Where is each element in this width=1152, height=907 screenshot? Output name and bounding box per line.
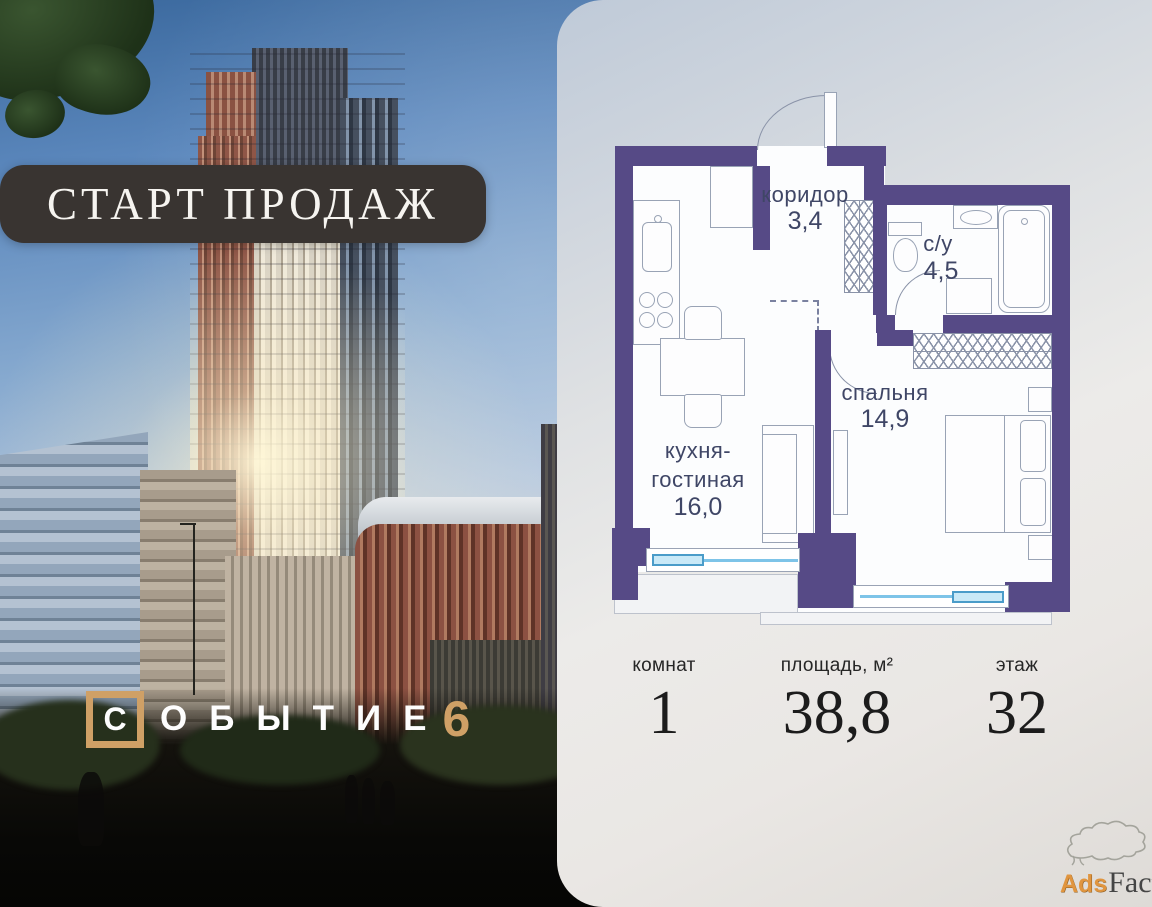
room-label-kitchen-line1: кухня-	[638, 438, 758, 464]
zone-boundary-dashed	[817, 300, 819, 332]
bathroom-sink	[953, 205, 998, 229]
stove-burner	[639, 292, 655, 308]
stat-rooms-label: комнат	[589, 655, 739, 677]
sink-basin	[960, 210, 992, 225]
bathtub-drain	[1021, 218, 1028, 225]
logo-first-letter: С	[103, 703, 126, 735]
wall	[612, 528, 638, 600]
room-area-corridor: 3,4	[745, 207, 865, 236]
wall	[1005, 582, 1070, 612]
balcony-slab	[760, 612, 1052, 625]
kitchen-window-glazing	[704, 559, 798, 562]
stat-rooms: комнат 1	[589, 655, 739, 746]
logo-number: 6	[443, 690, 471, 748]
watermark-text: AdsFactory	[1060, 866, 1152, 900]
dining-table	[660, 338, 745, 396]
chair	[684, 394, 722, 428]
wall	[880, 185, 1070, 205]
kitchen-sink	[642, 222, 672, 272]
stat-area-label: площадь, м²	[742, 655, 932, 677]
person	[380, 781, 395, 825]
zone-boundary-dashed	[770, 300, 819, 302]
stat-floor-label: этаж	[942, 655, 1092, 677]
balcony-slab	[614, 574, 798, 614]
wall	[943, 315, 1052, 333]
wall	[815, 330, 831, 545]
stove-burner	[639, 312, 655, 328]
kitchen-window-sash	[652, 554, 704, 566]
entry-door-leaf	[824, 92, 837, 148]
room-label-corridor: коридор	[740, 182, 870, 208]
street-lamp	[193, 525, 195, 695]
wall	[617, 146, 757, 166]
sales-banner-text: СТАРТ ПРОДАЖ	[47, 178, 439, 230]
entry-door-arc	[757, 95, 827, 150]
wall	[1052, 185, 1070, 612]
stat-floor-value: 32	[942, 681, 1092, 746]
logo-name: ОБЫТИЕ	[160, 699, 449, 739]
stove-burner	[657, 292, 673, 308]
bathtub	[998, 205, 1050, 313]
floor-plan: коридор 3,4 с/у 4,5 спальня 14,9 кухня- …	[612, 88, 1072, 633]
stat-rooms-value: 1	[589, 681, 739, 746]
room-area-bathroom: 4,5	[906, 257, 976, 286]
person	[362, 778, 375, 824]
nightstand	[1028, 535, 1053, 560]
stat-floor: этаж 32	[942, 655, 1092, 746]
room-area-bedroom: 14,9	[853, 405, 917, 434]
bedroom-window-glazing	[860, 595, 952, 598]
factory-smoke-cloud-icon	[1057, 818, 1149, 866]
room-label-bedroom: спальня	[825, 380, 945, 406]
project-logo: С ОБЫТИЕ 6	[86, 688, 470, 750]
wall	[827, 146, 886, 166]
ad-poster: СТАРТ ПРОДАЖ С ОБЫТИЕ 6 комнат 1 площадь…	[0, 0, 1152, 907]
blanket-line	[1004, 416, 1005, 532]
sales-banner: СТАРТ ПРОДАЖ	[0, 165, 486, 243]
faucet	[654, 215, 662, 223]
bedroom-window-sash	[952, 591, 1004, 603]
building-photo: СТАРТ ПРОДАЖ С ОБЫТИЕ 6	[0, 0, 622, 907]
stat-area: площадь, м² 38,8	[742, 655, 932, 746]
bedroom-dresser	[833, 430, 848, 515]
wardrobe-rod	[914, 351, 1051, 352]
logo-letter-box: С	[86, 691, 144, 748]
room-area-kitchen: 16,0	[666, 493, 730, 522]
room-label-kitchen-line2: гостиная	[638, 467, 758, 493]
nightstand	[1028, 387, 1052, 412]
wall	[615, 146, 633, 530]
bedroom-wardrobe	[913, 333, 1052, 369]
person	[345, 775, 358, 823]
chair	[684, 306, 722, 340]
wall	[873, 200, 887, 315]
street-lamp-arm	[180, 523, 196, 525]
room-label-bathroom: с/у	[906, 231, 970, 257]
person-cyclist	[78, 772, 104, 846]
wall	[877, 330, 913, 346]
watermark-factory: Factory	[1108, 866, 1152, 900]
pillow	[1020, 420, 1046, 472]
sofa-seat	[763, 434, 797, 534]
watermark: AdsFactory	[1005, 818, 1152, 907]
stove-burner	[657, 312, 673, 328]
sofa	[762, 425, 814, 543]
watermark-ads: Ads	[1060, 870, 1107, 899]
pillow	[1020, 478, 1046, 526]
stat-area-value: 38,8	[742, 681, 932, 746]
